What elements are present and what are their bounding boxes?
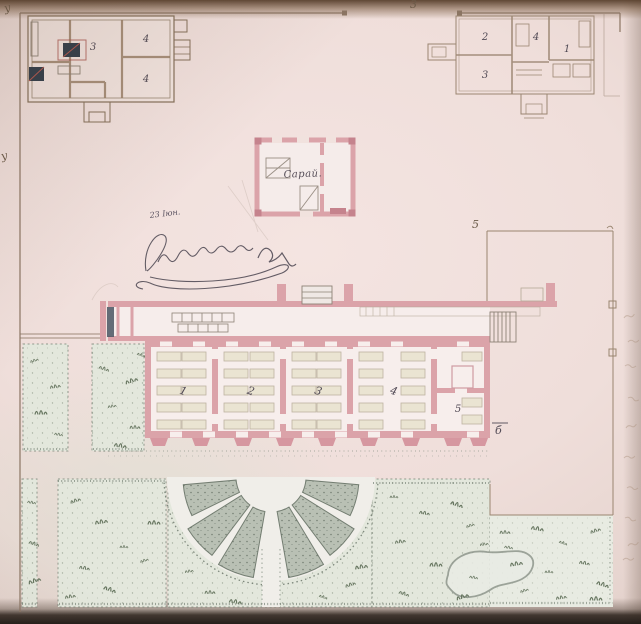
- bleedthrough-marks: [623, 314, 639, 561]
- bed: [462, 415, 482, 424]
- window-gap: [236, 432, 248, 438]
- chimney-stub: [277, 284, 286, 303]
- bed: [157, 420, 181, 429]
- pilaster: [150, 438, 168, 446]
- door-gap: [212, 414, 218, 424]
- handwritten-signature: [136, 235, 296, 289]
- pilaster: [192, 438, 210, 446]
- bleedthrough-mark: [628, 542, 639, 547]
- window-gap: [391, 342, 403, 347]
- window-gap: [170, 432, 182, 438]
- window-gap: [358, 342, 370, 347]
- door-gap: [347, 349, 353, 359]
- bed: [182, 420, 206, 429]
- ne-room-number: 2: [481, 32, 488, 43]
- bed: [250, 352, 274, 361]
- window-gap: [325, 342, 337, 347]
- bed: [401, 352, 425, 361]
- south-pilasters: [150, 438, 488, 446]
- bed: [462, 398, 482, 407]
- dorm-west-wall: [145, 341, 151, 438]
- yard-corner-marker: 5: [472, 218, 479, 231]
- pilaster: [470, 438, 488, 446]
- pilaster: [318, 438, 336, 446]
- border-gap-post: [457, 11, 462, 16]
- date-annotation: 23 Іюн.: [148, 207, 181, 220]
- door-gap: [431, 349, 437, 359]
- door-gap: [347, 414, 353, 424]
- nw-room-number: 3: [90, 42, 96, 53]
- bleedthrough-mark: [624, 314, 635, 319]
- bed: [182, 403, 206, 412]
- plot-stipple: [58, 479, 166, 607]
- north-shed-mark: [521, 288, 543, 301]
- main-building-letter-group: б: [492, 423, 508, 437]
- bleedthrough-mark: [628, 397, 639, 402]
- pilaster: [444, 438, 462, 446]
- ne-annex: [428, 44, 456, 60]
- plot-stipple: [92, 344, 144, 451]
- bed: [182, 369, 206, 378]
- door-gap: [212, 349, 218, 359]
- bed: [401, 386, 425, 395]
- bleedthrough-mark: [625, 365, 636, 368]
- ne-yard-line: [604, 14, 620, 96]
- bed: [182, 352, 206, 361]
- pilaster: [360, 438, 378, 446]
- bed: [317, 403, 341, 412]
- bed: [292, 352, 316, 361]
- west-stair-block: [107, 307, 114, 337]
- bed: [292, 420, 316, 429]
- bed: [292, 403, 316, 412]
- paper-creases: [92, 180, 268, 300]
- bed: [359, 369, 383, 378]
- window-gap: [226, 342, 238, 347]
- site-plan-svg: 3 4 4 2 4 3 1: [0, 0, 641, 624]
- bed: [359, 386, 383, 395]
- west-end-wall: [100, 301, 106, 341]
- window-gap: [203, 432, 215, 438]
- bed: [401, 369, 425, 378]
- bed: [224, 369, 248, 378]
- ne-room-number: 3: [482, 70, 488, 81]
- window-gap: [160, 342, 172, 347]
- north-porch: [302, 286, 332, 304]
- left-edge-marker: у: [0, 149, 10, 164]
- pilaster: [234, 438, 252, 446]
- pilaster: [402, 438, 420, 446]
- ne-porch: [521, 94, 547, 118]
- nw-room-number: 4: [142, 34, 149, 45]
- nw-annex: [174, 20, 190, 60]
- west-wall-line: [20, 334, 101, 338]
- window-gap: [302, 432, 314, 438]
- window-gap: [259, 342, 271, 347]
- bed: [401, 403, 425, 412]
- bed: [250, 369, 274, 378]
- bed: [224, 420, 248, 429]
- bed: [250, 420, 274, 429]
- door-gap: [280, 349, 286, 359]
- dorm-room-number: 5: [455, 404, 461, 415]
- fence-step: [490, 484, 613, 515]
- bleedthrough-mark: [627, 487, 638, 490]
- fan-axial-path: [262, 549, 280, 607]
- bed: [359, 403, 383, 412]
- corridor-floor: [108, 306, 490, 337]
- corridor-north-wall: [108, 301, 557, 307]
- nw-porch: [84, 102, 110, 122]
- window-gap: [457, 342, 469, 347]
- yard-fence: [487, 226, 616, 515]
- ne-inner-walls: [456, 16, 594, 94]
- window-gap: [335, 432, 347, 438]
- bed: [224, 386, 248, 395]
- shed-building: Сарай.: [255, 136, 356, 217]
- door-gap: [280, 414, 286, 424]
- photographed-site-plan: 3 4 4 2 4 3 1: [0, 0, 641, 624]
- ne-room-number: 1: [564, 44, 570, 55]
- chimney-stub: [546, 283, 555, 304]
- window-gap: [292, 342, 304, 347]
- window-gap: [193, 342, 205, 347]
- shed-label: Сарай.: [283, 168, 322, 180]
- bed: [317, 352, 341, 361]
- bed: [157, 369, 181, 378]
- bed: [317, 369, 341, 378]
- bleedthrough-mark: [628, 340, 639, 343]
- corridor-south-wall: [108, 336, 490, 341]
- bed: [224, 352, 248, 361]
- nw-stove-icon: [63, 43, 80, 57]
- ne-outbuilding: 2 4 3 1: [428, 16, 594, 118]
- pilaster: [276, 438, 294, 446]
- east-closet: [452, 366, 473, 388]
- dorm-south-wall: [145, 431, 490, 438]
- bed: [292, 386, 316, 395]
- nw-stove-icon: [29, 67, 44, 81]
- window-gap: [401, 432, 413, 438]
- bed: [401, 420, 425, 429]
- main-building: 12345 б: [100, 283, 557, 446]
- top-left-marker: у: [2, 1, 13, 15]
- bleedthrough-mark: [625, 517, 636, 522]
- bed: [317, 420, 341, 429]
- bed: [359, 352, 383, 361]
- bed: [250, 403, 274, 412]
- bleedthrough-mark: [626, 424, 637, 429]
- border-gap-post: [342, 11, 347, 16]
- bed: [157, 352, 181, 361]
- bleedthrough-mark: [624, 456, 635, 459]
- nw-outbuilding: 3 4 4: [28, 16, 190, 122]
- top-center-marker: 3: [410, 0, 417, 11]
- bed: [359, 420, 383, 429]
- ne-furniture: [516, 21, 590, 77]
- chimney-stub: [344, 284, 353, 303]
- bed: [462, 352, 482, 361]
- bed: [157, 386, 181, 395]
- bed: [157, 403, 181, 412]
- main-building-letter: б: [495, 424, 502, 437]
- door-gap: [431, 414, 437, 424]
- window-gap: [467, 432, 479, 438]
- fence-corner-mark: [607, 226, 613, 229]
- bed: [292, 369, 316, 378]
- east-room-door: [455, 388, 467, 393]
- window-gap: [368, 432, 380, 438]
- window-gap: [269, 432, 281, 438]
- bleedthrough-mark: [623, 558, 634, 561]
- bed: [224, 403, 248, 412]
- east-exterior-stair: [490, 312, 516, 342]
- ne-room-number: 4: [532, 32, 539, 43]
- nw-room-number: 4: [142, 74, 149, 85]
